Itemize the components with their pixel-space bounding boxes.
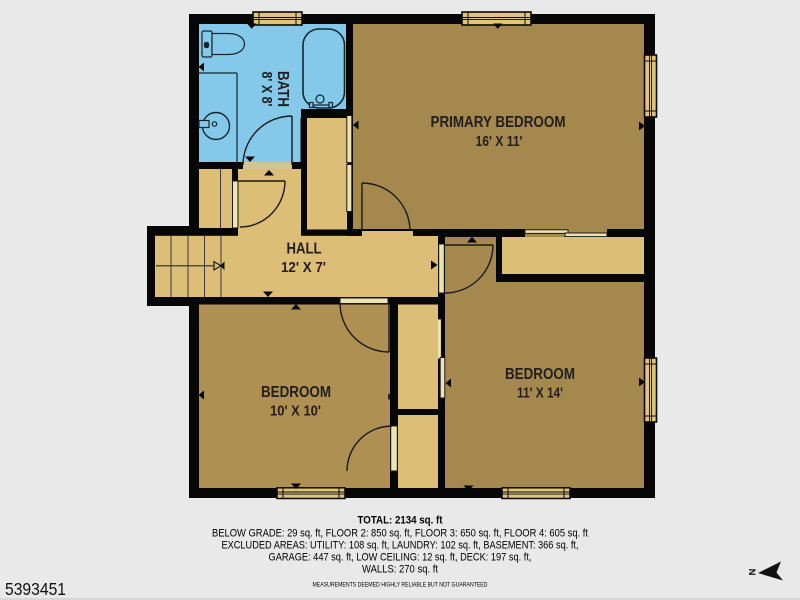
svg-text:BEDROOM: BEDROOM: [505, 366, 575, 383]
svg-text:TOTAL: 2134 sq. ft: TOTAL: 2134 sq. ft: [358, 515, 443, 527]
svg-text:WALLS: 270 sq. ft: WALLS: 270 sq. ft: [362, 564, 439, 576]
svg-text:HALL: HALL: [287, 241, 322, 258]
svg-text:16' X 11': 16' X 11': [476, 133, 523, 150]
svg-text:BEDROOM: BEDROOM: [261, 384, 331, 401]
svg-text:8' X 8': 8' X 8': [258, 72, 275, 107]
svg-text:N: N: [746, 569, 757, 576]
svg-text:MEASUREMENTS DEEMED HIGHLY REL: MEASUREMENTS DEEMED HIGHLY RELIABLE BUT …: [313, 582, 488, 589]
svg-text:10' X 10': 10' X 10': [270, 403, 321, 420]
svg-text:12' X 7': 12' X 7': [281, 259, 326, 276]
svg-text:EXCLUDED AREAS: UTILITY: 108 s: EXCLUDED AREAS: UTILITY: 108 sq. ft, LAU…: [222, 540, 579, 552]
svg-text:5393451: 5393451: [5, 579, 66, 599]
svg-text:11' X 14': 11' X 14': [517, 385, 563, 402]
svg-text:BATH: BATH: [274, 71, 291, 107]
svg-text:PRIMARY BEDROOM: PRIMARY BEDROOM: [431, 114, 566, 131]
svg-text:GARAGE: 447 sq. ft, LOW CEILIN: GARAGE: 447 sq. ft, LOW CEILING: 12 sq. …: [269, 552, 532, 564]
svg-text:BELOW GRADE: 29 sq. ft, FLOOR: BELOW GRADE: 29 sq. ft, FLOOR 2: 850 sq.…: [212, 528, 589, 540]
